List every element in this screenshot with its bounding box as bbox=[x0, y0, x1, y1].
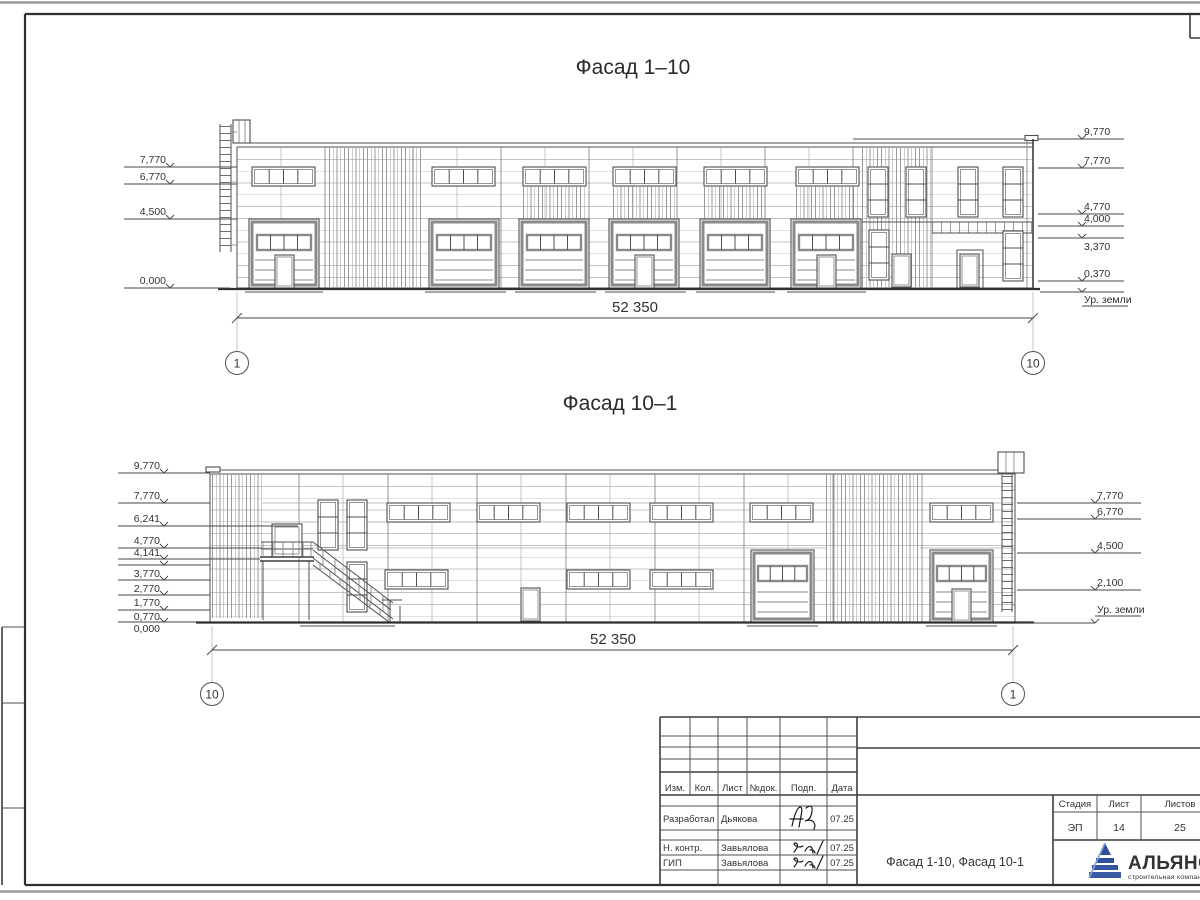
title-block-header: Изм. Кол. Лист №док. Подп. Дата bbox=[665, 783, 853, 794]
stage-value: ЭП bbox=[1067, 822, 1082, 834]
tb-name: Завьялова bbox=[721, 858, 769, 869]
signature bbox=[794, 856, 823, 869]
elevation-label: 7,770 bbox=[140, 154, 166, 166]
sheet-value: 14 bbox=[1113, 822, 1125, 834]
elevation-label: 3,370 bbox=[1084, 241, 1110, 253]
tb-col-list: Лист bbox=[722, 783, 743, 794]
elevation-label: 0,770 bbox=[134, 611, 160, 623]
elevation-label: 6,770 bbox=[1097, 506, 1123, 518]
elevation-label: 0,370 bbox=[1084, 268, 1110, 280]
sheet-frame bbox=[0, 3, 1200, 892]
sheets-label: Листов bbox=[1165, 799, 1196, 810]
company-name: АЛЬЯНС bbox=[1128, 853, 1200, 874]
tb-date: 07.25 bbox=[830, 814, 854, 825]
tb-col-izm: Изм. bbox=[665, 783, 685, 794]
elevation-label: 3,770 bbox=[134, 568, 160, 580]
tb-col-ndok: №док. bbox=[750, 783, 778, 794]
elevation-label: 9,770 bbox=[1084, 126, 1110, 138]
facade-1-10: Фасад 1–10 bbox=[124, 56, 1132, 375]
elevation-label: 7,770 bbox=[134, 490, 160, 502]
tb-role: Разработал bbox=[663, 814, 715, 825]
stage-label: Стадия bbox=[1059, 799, 1091, 810]
company-logo: АЛЬЯНС строительная компания bbox=[1089, 843, 1200, 881]
elevation-label: 6,770 bbox=[140, 171, 166, 183]
stage-table: Стадия Лист Листов ЭП 14 25 bbox=[1059, 799, 1196, 834]
tb-name: Дьякова bbox=[721, 814, 758, 825]
company-subtitle: строительная компания bbox=[1128, 874, 1200, 881]
axis-bubble-label: 10 bbox=[1026, 357, 1040, 371]
tb-date: 07.25 bbox=[830, 858, 854, 869]
facade2-ladder-rails bbox=[1002, 475, 1012, 612]
drawing-linework: Фасад 1–10 bbox=[0, 0, 1200, 900]
tb-col-podp: Подп. bbox=[791, 783, 816, 794]
tb-date: 07.25 bbox=[830, 843, 854, 854]
facade1-elevations-right: 9,770 7,770 4,770 4,000 3,370 0,370 Ур. … bbox=[1038, 126, 1132, 306]
tb-role: ГИП bbox=[663, 858, 682, 869]
ground-level-label: Ур. земли bbox=[1084, 294, 1132, 306]
document-title: Фасад 1-10, Фасад 10-1 bbox=[886, 855, 1024, 869]
elevation-label: 2,100 bbox=[1097, 577, 1123, 589]
facade-10-1: Фасад 10–1 bbox=[118, 392, 1145, 706]
axis-bubble-label: 1 bbox=[1010, 688, 1017, 702]
elevation-label: 4,770 bbox=[134, 535, 160, 547]
dimension-label: 52 350 bbox=[612, 299, 658, 316]
tb-name: Завьялова bbox=[721, 843, 769, 854]
facade1-dimension: 52 350 1 10 bbox=[226, 292, 1045, 375]
pyramid-logo-icon bbox=[1089, 843, 1121, 878]
elevation-label: 4,770 bbox=[1084, 201, 1110, 213]
elevation-label: 1,770 bbox=[134, 597, 160, 609]
axis-bubble-label: 10 bbox=[205, 688, 219, 702]
signature bbox=[794, 841, 823, 854]
facade1-roof-box bbox=[233, 120, 250, 143]
elevation-label: 4,000 bbox=[1084, 213, 1110, 225]
tb-col-kol: Кол. bbox=[695, 783, 714, 794]
elevation-label: 2,770 bbox=[134, 583, 160, 595]
ground-level-label: Ур. земли bbox=[1097, 604, 1145, 616]
elevation-label: 0,000 bbox=[134, 623, 160, 635]
tb-col-data: Дата bbox=[831, 783, 853, 794]
signature bbox=[790, 806, 815, 829]
axis-bubble-label: 1 bbox=[234, 357, 241, 371]
elevation-label: 4,141 bbox=[134, 547, 160, 559]
corner-box bbox=[1190, 14, 1200, 38]
facade1-title: Фасад 1–10 bbox=[576, 56, 691, 79]
title-block-rows: Разработал Дьякова 07.25 Н. контр. Завья… bbox=[663, 806, 854, 869]
facade2-elevations-left: 9,770 7,770 6,241 4,770 4,141 3,770 2,77… bbox=[118, 460, 298, 635]
left-margin-cells bbox=[2, 627, 25, 885]
elevation-label: 4,500 bbox=[1097, 540, 1123, 552]
sheets-value: 25 bbox=[1174, 822, 1186, 834]
sheet-label: Лист bbox=[1109, 799, 1130, 810]
facade2-title: Фасад 10–1 bbox=[563, 392, 678, 415]
drawing-sheet: Фасад 1–10 bbox=[0, 0, 1200, 900]
dimension-label: 52 350 bbox=[590, 631, 636, 648]
elevation-label: 7,770 bbox=[1084, 155, 1110, 167]
facade2-elevations-right: 7,770 6,770 4,500 2,100 Ур. земли bbox=[1017, 490, 1145, 623]
facade2-dimension: 52 350 10 1 bbox=[201, 626, 1025, 706]
facade1-ladder-rails bbox=[220, 124, 231, 252]
facade2-roof-box bbox=[998, 452, 1024, 473]
elevation-label: 4,500 bbox=[140, 206, 166, 218]
elevation-label: 7,770 bbox=[1097, 490, 1123, 502]
tb-role: Н. контр. bbox=[663, 843, 702, 854]
title-block: Изм. Кол. Лист №док. Подп. Дата Разработ… bbox=[660, 717, 1200, 885]
elevation-label: 0,000 bbox=[140, 275, 166, 287]
elevation-label: 6,241 bbox=[134, 513, 160, 525]
elevation-label: 9,770 bbox=[134, 460, 160, 472]
